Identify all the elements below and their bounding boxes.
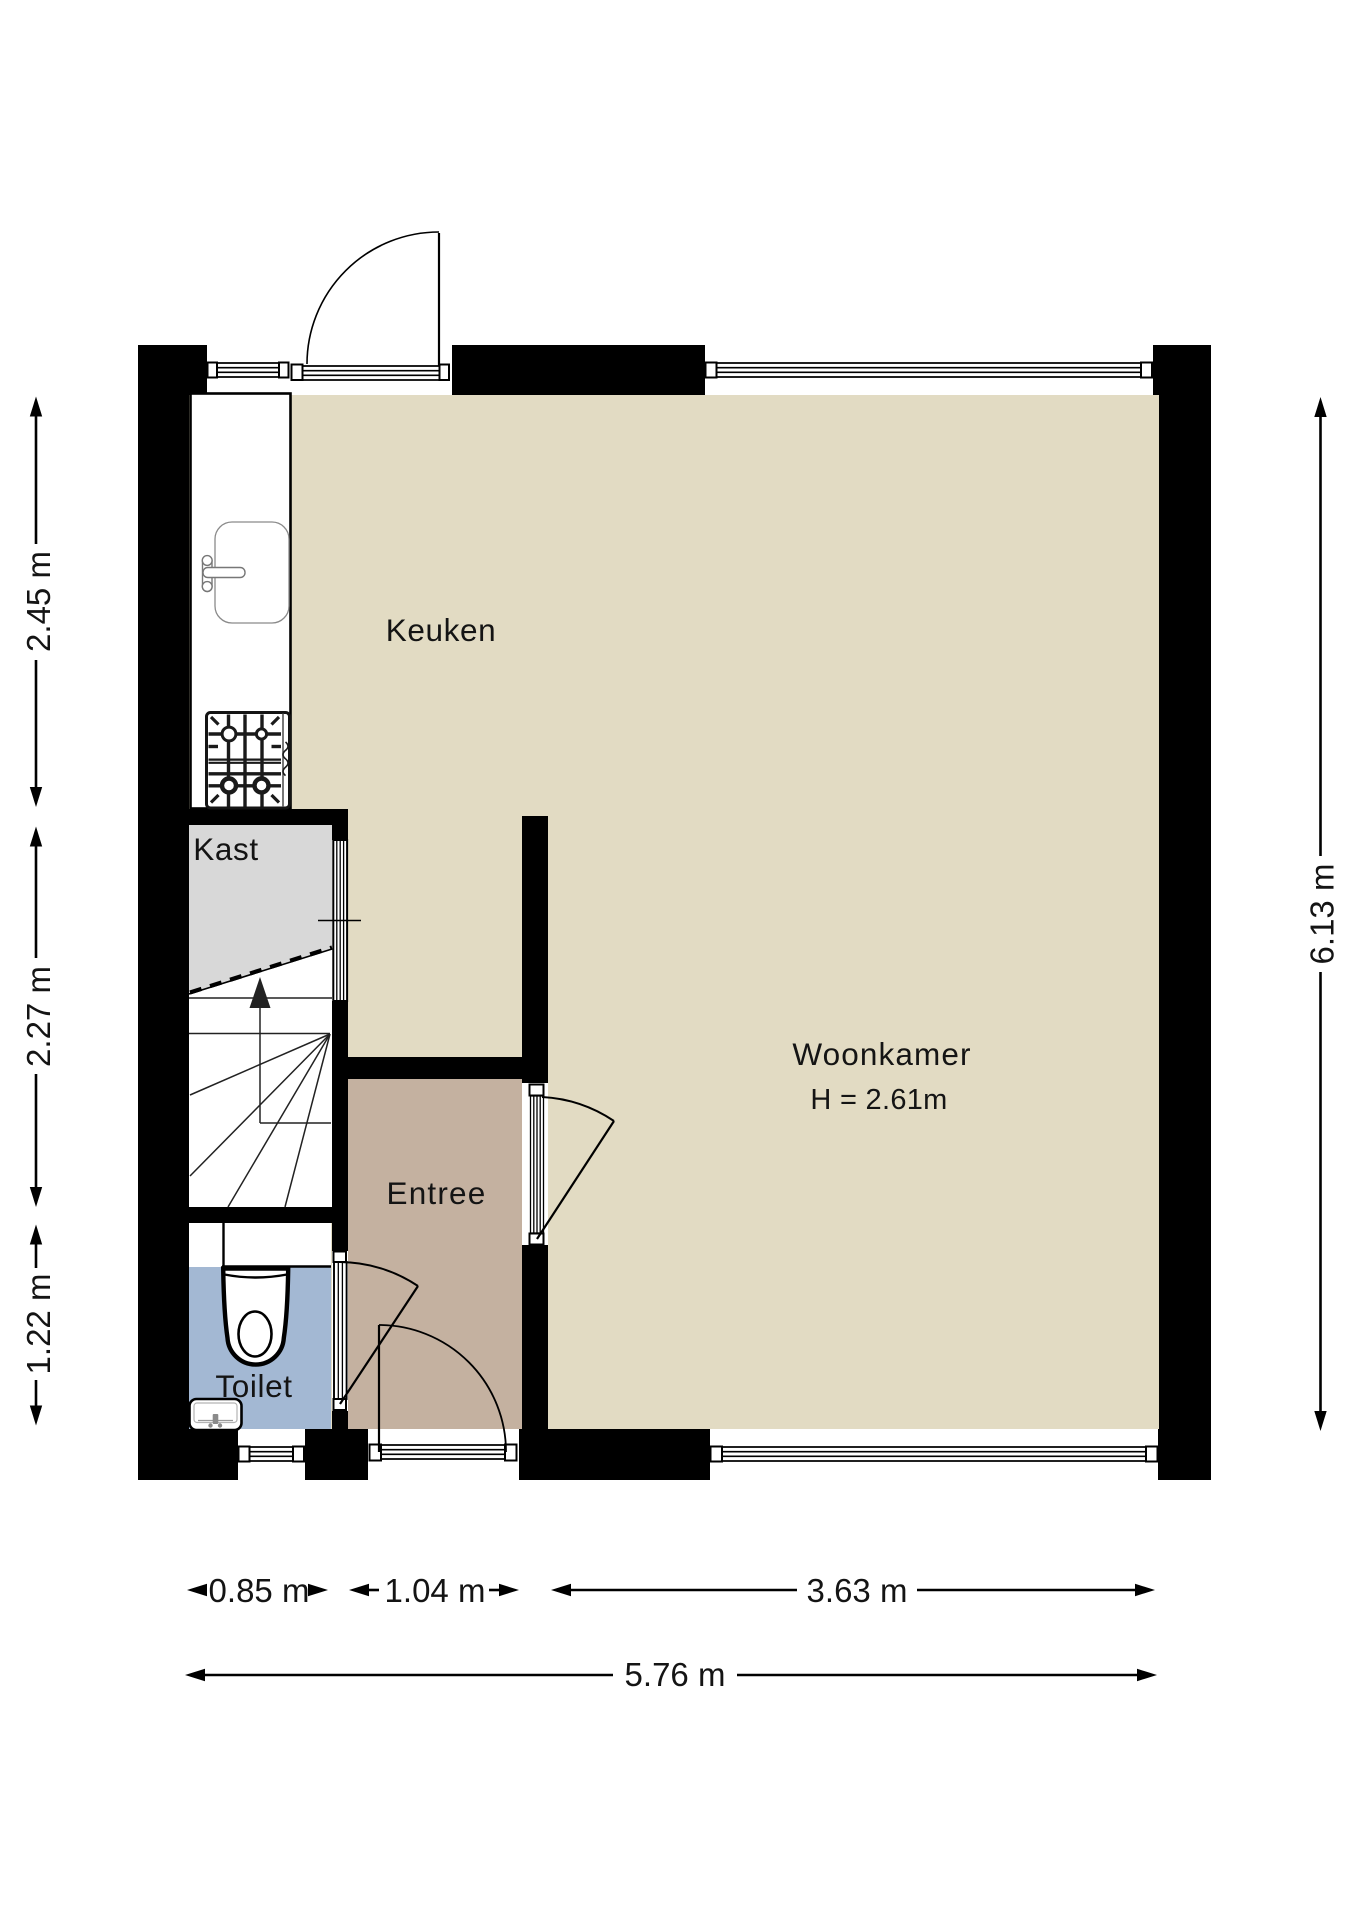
svg-text:5.76 m: 5.76 m bbox=[625, 1656, 726, 1693]
svg-text:Toilet: Toilet bbox=[215, 1368, 292, 1404]
svg-text:Kast: Kast bbox=[193, 831, 258, 867]
svg-text:2.27 m: 2.27 m bbox=[20, 966, 57, 1067]
svg-text:3.63 m: 3.63 m bbox=[807, 1572, 908, 1609]
svg-text:1.22 m: 1.22 m bbox=[20, 1274, 57, 1375]
svg-text:0.85 m: 0.85 m bbox=[209, 1572, 310, 1609]
svg-text:6.13 m: 6.13 m bbox=[1304, 864, 1341, 965]
svg-text:2.45 m: 2.45 m bbox=[20, 551, 57, 652]
svg-text:H = 2.61m: H = 2.61m bbox=[810, 1084, 947, 1116]
svg-text:1.04 m: 1.04 m bbox=[385, 1572, 486, 1609]
svg-text:Keuken: Keuken bbox=[386, 612, 496, 648]
svg-text:Woonkamer: Woonkamer bbox=[792, 1036, 971, 1072]
svg-text:Entree: Entree bbox=[386, 1175, 486, 1211]
